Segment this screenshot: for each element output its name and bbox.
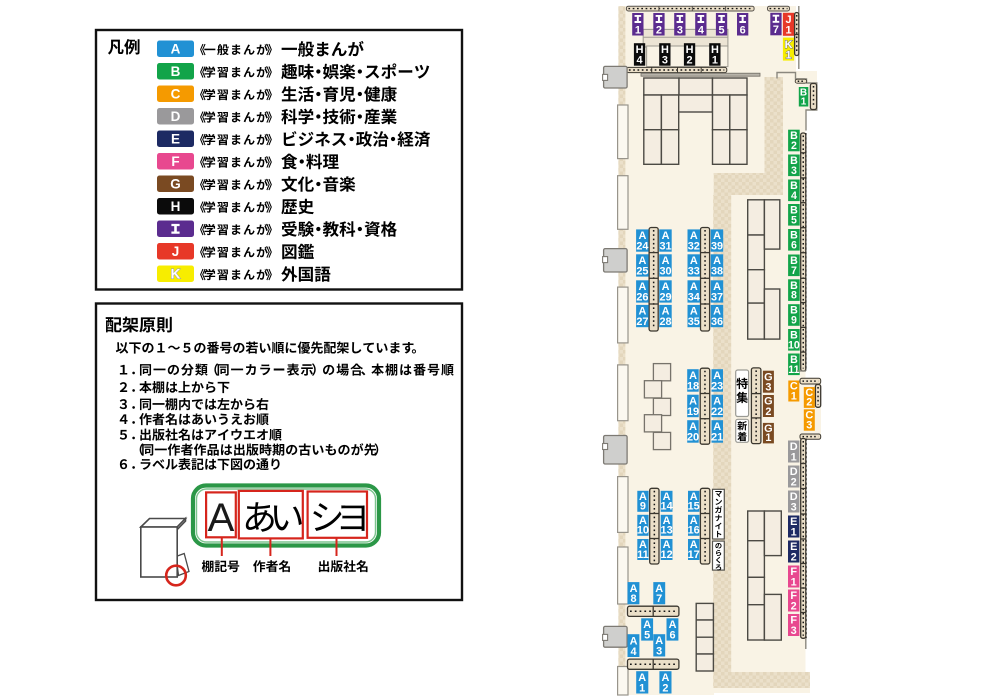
svg-text:C: C [171, 87, 181, 102]
svg-text:A7: A7 [655, 583, 663, 605]
svg-text:E: E [171, 132, 180, 147]
svg-text:E2: E2 [790, 541, 797, 563]
svg-text:2: 2 [656, 24, 662, 36]
svg-text:A8: A8 [630, 583, 638, 605]
svg-text:A: A [208, 496, 235, 540]
svg-text:B: B [171, 64, 181, 79]
svg-text:H4: H4 [636, 44, 644, 66]
svg-text:G3: G3 [764, 371, 772, 393]
svg-text:F1: F1 [790, 566, 797, 588]
svg-text:A3: A3 [655, 635, 663, 657]
svg-text:J1: J1 [785, 14, 791, 37]
svg-text:F3: F3 [790, 615, 797, 637]
svg-text:A1: A1 [638, 672, 646, 694]
svg-text:1: 1 [635, 24, 641, 36]
svg-text:7: 7 [773, 24, 779, 36]
svg-text:K: K [171, 267, 181, 282]
svg-text:A: A [171, 42, 181, 57]
svg-text:A5: A5 [643, 619, 651, 641]
svg-text:H3: H3 [661, 44, 669, 66]
svg-text:C1: C1 [790, 381, 798, 403]
svg-text:H: H [171, 199, 181, 214]
svg-text:3: 3 [677, 24, 683, 36]
svg-text:F: F [171, 154, 179, 169]
svg-text:5: 5 [718, 24, 724, 36]
svg-text:H2: H2 [686, 44, 694, 66]
svg-text:A9: A9 [639, 491, 647, 513]
svg-text:B1: B1 [800, 88, 807, 108]
svg-text:K1: K1 [785, 39, 793, 62]
svg-text:D2: D2 [790, 466, 798, 488]
svg-text:6: 6 [740, 24, 746, 36]
svg-text:A2: A2 [661, 672, 669, 694]
svg-text:E1: E1 [790, 516, 797, 538]
svg-text:A4: A4 [630, 635, 638, 658]
svg-text:H1: H1 [711, 44, 719, 66]
svg-text:A6: A6 [669, 619, 677, 641]
svg-text:G: G [170, 177, 181, 192]
svg-text:D1: D1 [790, 441, 798, 463]
svg-text:F2: F2 [790, 590, 797, 612]
svg-text:D: D [171, 109, 181, 124]
svg-text:4: 4 [698, 24, 704, 36]
svg-text:J: J [172, 244, 180, 259]
svg-text:G2: G2 [764, 396, 772, 418]
svg-text:G1: G1 [764, 423, 772, 444]
svg-text:C3: C3 [805, 410, 813, 432]
svg-text:D3: D3 [790, 491, 798, 513]
svg-text:C2: C2 [805, 387, 813, 409]
